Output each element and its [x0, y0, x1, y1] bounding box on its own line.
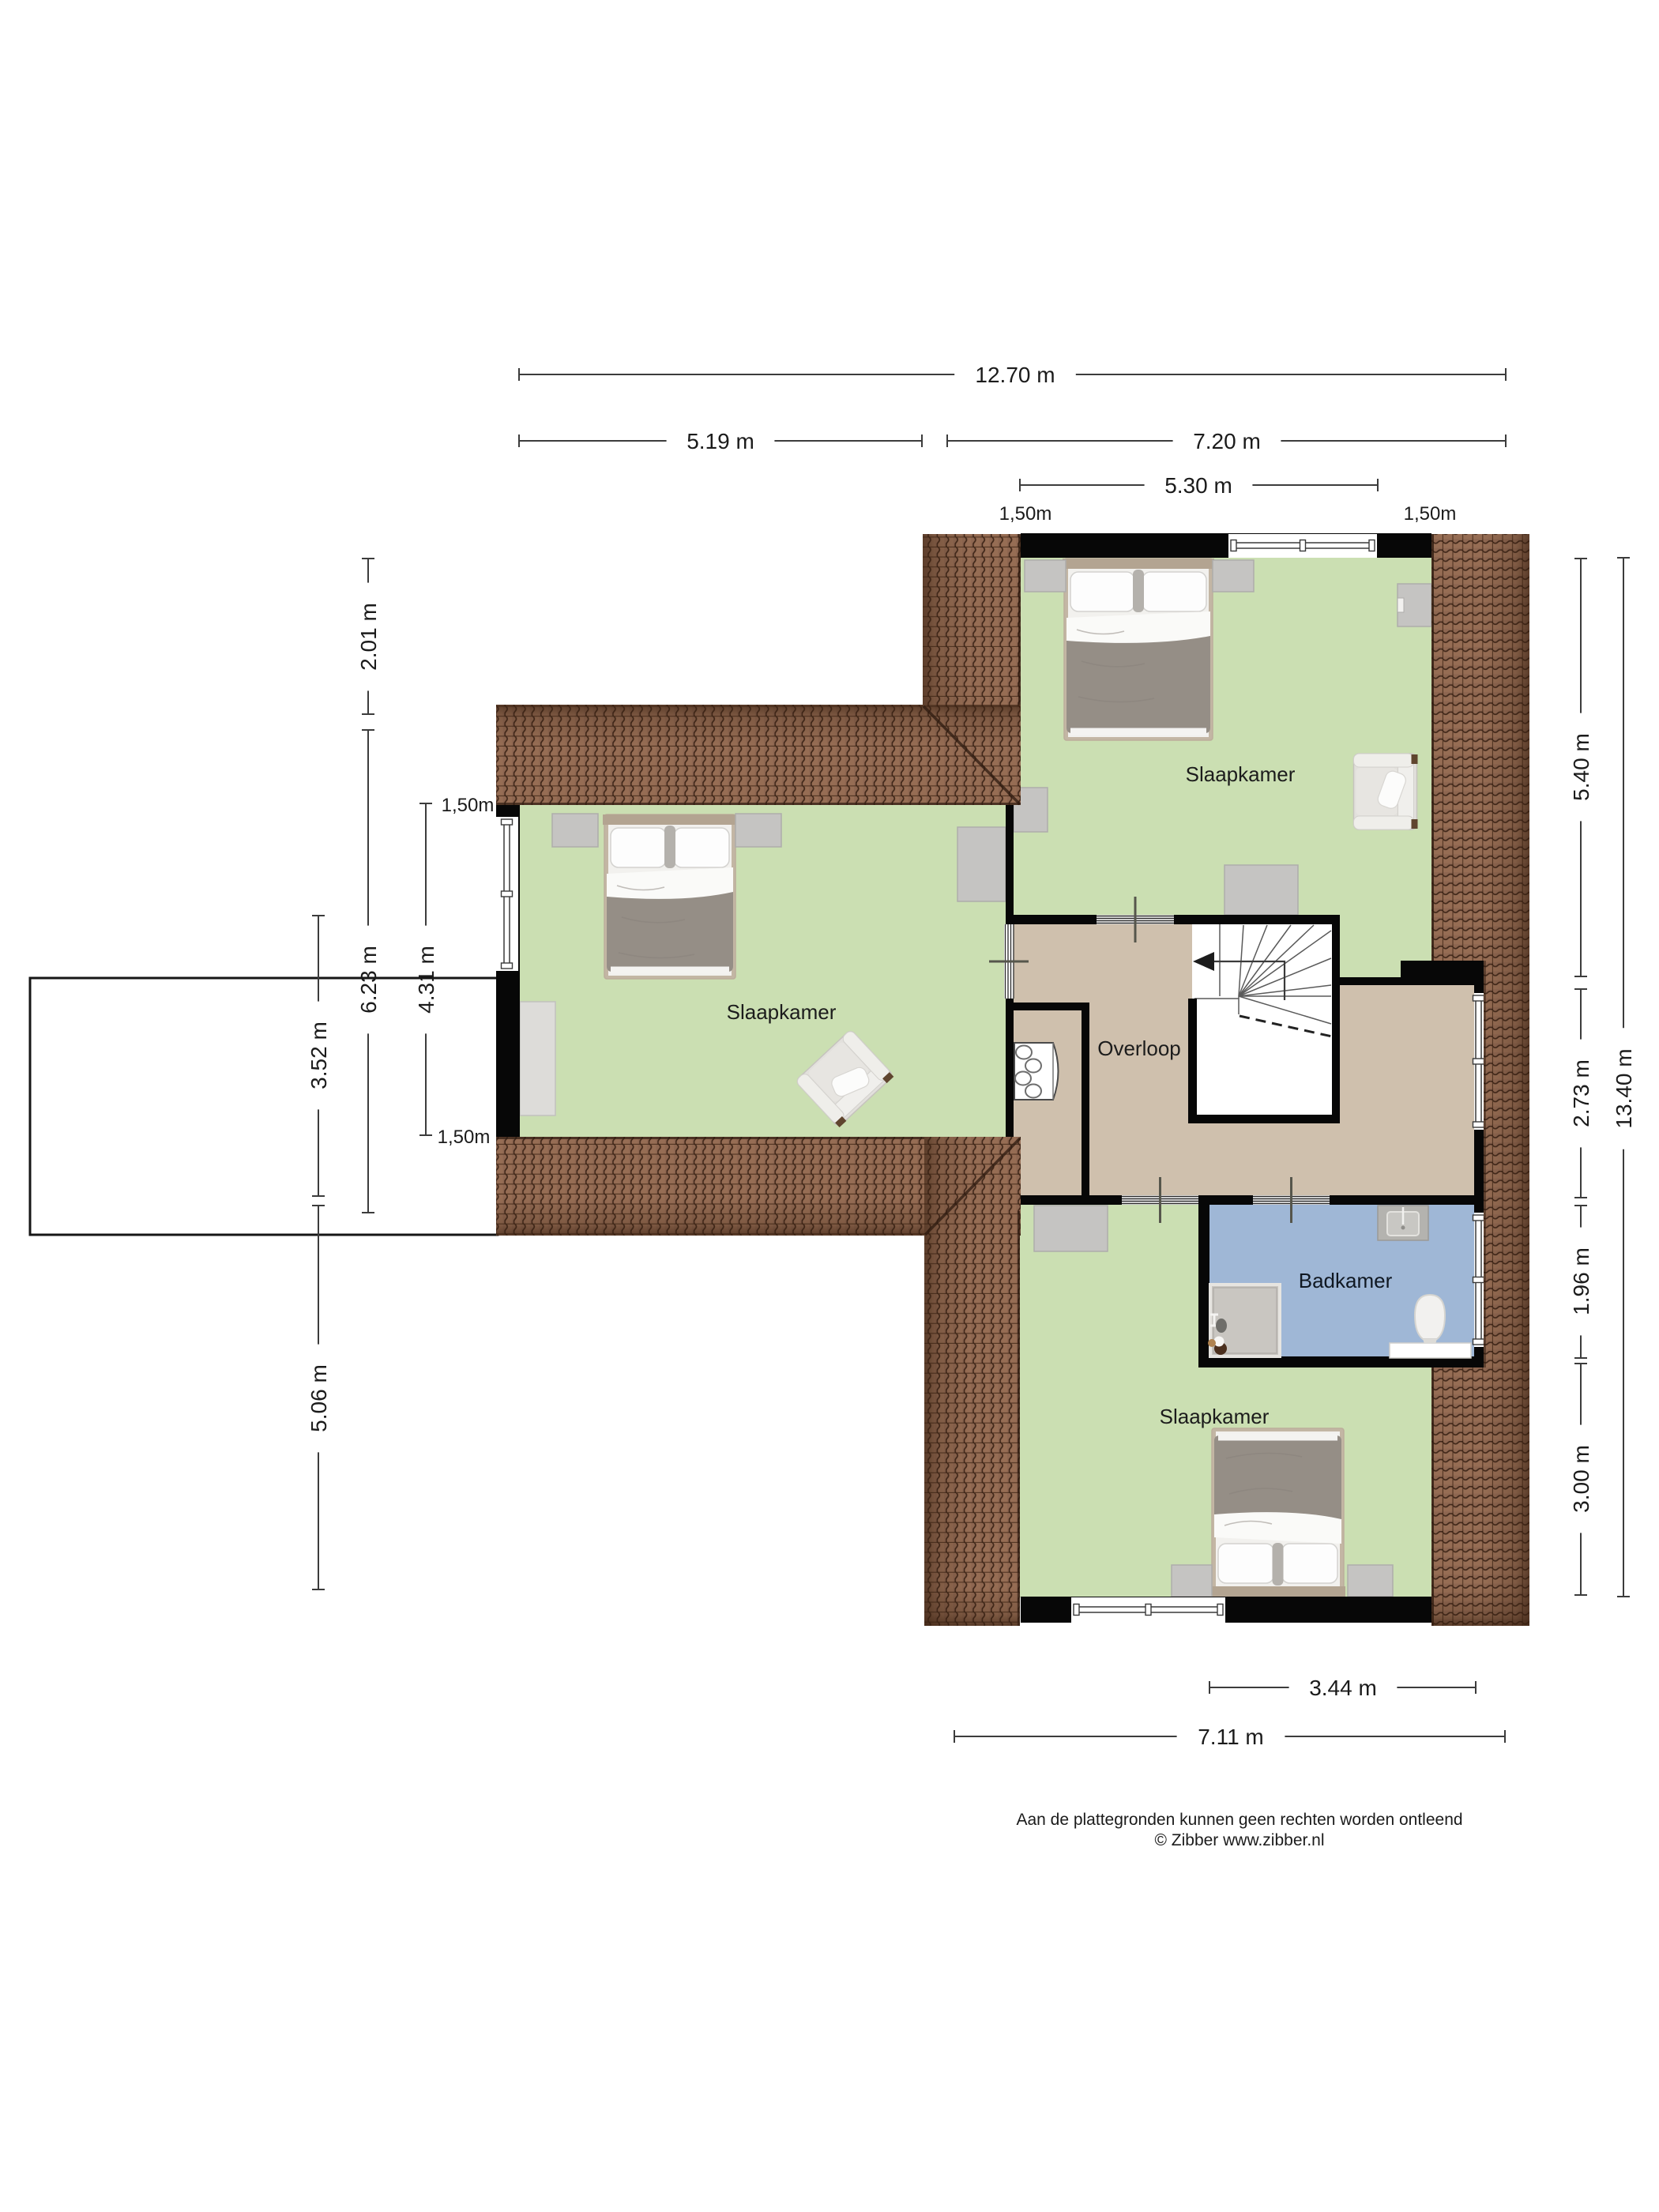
- svg-text:4.31 m: 4.31 m: [414, 946, 438, 1014]
- svg-text:1,50m: 1,50m: [1404, 503, 1457, 525]
- svg-text:5.06 m: 5.06 m: [307, 1364, 331, 1432]
- svg-text:2.73 m: 2.73 m: [1569, 1059, 1593, 1127]
- svg-text:13.40 m: 13.40 m: [1612, 1048, 1636, 1128]
- svg-text:Badkamer: Badkamer: [1299, 1269, 1393, 1292]
- svg-text:1.96 m: 1.96 m: [1569, 1247, 1593, 1315]
- svg-text:3.00 m: 3.00 m: [1569, 1445, 1593, 1513]
- svg-text:Slaapkamer: Slaapkamer: [727, 1000, 837, 1024]
- svg-text:5.40 m: 5.40 m: [1569, 733, 1593, 801]
- svg-text:Slaapkamer: Slaapkamer: [1160, 1405, 1270, 1428]
- svg-text:12.70 m: 12.70 m: [975, 363, 1055, 387]
- svg-text:7.11 m: 7.11 m: [1198, 1725, 1264, 1749]
- svg-text:6.23 m: 6.23 m: [356, 946, 381, 1014]
- svg-text:© Zibber www.zibber.nl: © Zibber www.zibber.nl: [1154, 1831, 1324, 1849]
- svg-text:3.44 m: 3.44 m: [1309, 1676, 1377, 1700]
- svg-text:1,50m: 1,50m: [438, 1127, 491, 1148]
- svg-text:1,50m: 1,50m: [442, 795, 495, 816]
- svg-text:5.30 m: 5.30 m: [1164, 473, 1232, 498]
- svg-text:1,50m: 1,50m: [999, 503, 1052, 525]
- svg-text:7.20 m: 7.20 m: [1193, 429, 1261, 453]
- svg-text:3.52 m: 3.52 m: [307, 1021, 331, 1089]
- svg-text:Overloop: Overloop: [1097, 1036, 1181, 1060]
- svg-text:2.01 m: 2.01 m: [356, 603, 381, 671]
- svg-text:Aan de plattegronden kunnen ge: Aan de plattegronden kunnen geen rechten…: [1016, 1811, 1462, 1829]
- svg-text:Slaapkamer: Slaapkamer: [1186, 762, 1296, 786]
- svg-text:5.19 m: 5.19 m: [687, 429, 754, 453]
